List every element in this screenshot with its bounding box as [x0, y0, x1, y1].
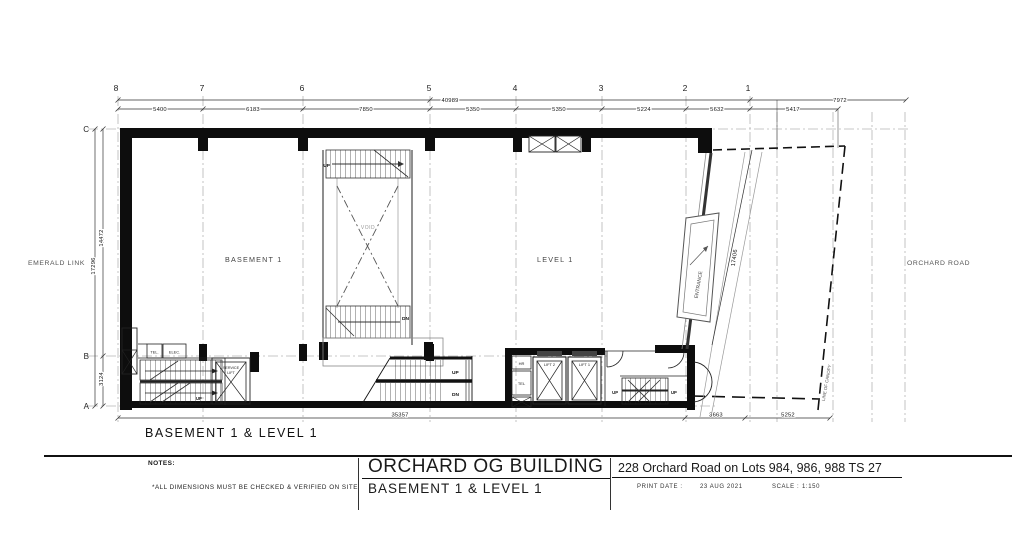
dim-3-2: 5224: [637, 107, 651, 113]
scissor-up-left-label: UP: [612, 390, 618, 395]
bottom-dimensions: 35357 3663 5252: [116, 413, 833, 421]
escalator-dn-label: DN: [452, 392, 459, 398]
dim-entrance: 17406: [731, 249, 739, 267]
dim-left-total: 17296: [91, 257, 97, 274]
lift2-label: LIFT 2: [544, 362, 555, 367]
scissor-up-right-label: UP: [671, 390, 677, 395]
grid-col-3: 3: [599, 83, 604, 93]
notes-text: *ALL DIMENSIONS MUST BE CHECKED & VERIFI…: [152, 484, 358, 491]
entrance-canopy: ENTRANCE: [677, 213, 719, 322]
dim-1-edge: 5417: [786, 107, 800, 113]
dim-canopy-top: 7972: [833, 98, 847, 104]
project-title-underline: [362, 478, 610, 479]
grid-col-6: 6: [300, 83, 305, 93]
grid-row-c: C: [83, 125, 89, 134]
emerald-link-label: EMERALD LINK: [28, 260, 85, 267]
dim-5-4: 5350: [466, 107, 480, 113]
void-label: VOID: [361, 225, 375, 231]
print-date-value: 23 AUG 2021: [700, 484, 743, 490]
tel-b1-label: TEL.: [150, 350, 158, 355]
top-vent-boxes: [529, 136, 581, 152]
title-block-divider-1: [358, 458, 359, 510]
dim-total-top: 40989: [441, 98, 458, 104]
grid-col-2: 2: [683, 83, 688, 93]
floor-plan-sheet: 8 7 6 5 4 3 2 1 5400 6183 7850 5350 5350…: [0, 0, 1024, 537]
left-dimensions: C B A 17296 14472 3124 EMERALD LINK: [28, 125, 106, 411]
grid-col-8: 8: [114, 83, 119, 93]
stair-up-label-central: UP: [323, 163, 330, 169]
grid-col-5: 5: [427, 83, 432, 93]
tel-l1-label: TEL: [518, 381, 526, 386]
elec-label: ELEC.: [169, 350, 180, 355]
orchard-road-label: ORCHARD ROAD: [907, 260, 970, 267]
print-date-label: PRINT DATE :: [637, 484, 683, 490]
grid-col-4: 4: [513, 83, 518, 93]
stair-dn-label-central: DN: [402, 316, 409, 322]
scale-value: 1:150: [802, 484, 820, 490]
grid-row-a: A: [84, 402, 90, 411]
title-block: NOTES: *ALL DIMENSIONS MUST BE CHECKED &…: [0, 450, 1024, 537]
dim-left-c-b: 14472: [99, 229, 105, 246]
level1-area-label: LEVEL 1: [537, 255, 574, 264]
dim-bottom-2: 5252: [781, 413, 795, 419]
grid-col-1: 1: [746, 83, 751, 93]
dim-7-6: 6183: [246, 107, 260, 113]
service-lift-label-1: SERVICE: [223, 366, 240, 370]
scale-label: SCALE :: [772, 484, 799, 490]
l1-lift-block: [512, 351, 712, 407]
escalators: [362, 356, 472, 406]
escalator-up-label: UP: [452, 370, 459, 376]
dim-8-7: 5400: [153, 107, 167, 113]
dim-6-5: 7850: [359, 107, 373, 113]
dim-4-3: 5350: [552, 107, 566, 113]
dim-bottom-total: 35357: [391, 413, 408, 419]
stair-up-label-b1: UP: [196, 396, 202, 401]
project-address-underline: [612, 477, 902, 478]
hr-label: HR: [519, 361, 525, 366]
central-stair-core: [323, 150, 443, 366]
floor-plan-drawing: 8 7 6 5 4 3 2 1 5400 6183 7850 5350 5350…: [0, 0, 1024, 452]
top-dimensions: 8 7 6 5 4 3 2 1 5400 6183 7850 5350 5350…: [114, 83, 909, 150]
project-title: ORCHARD OG BUILDING: [368, 456, 608, 478]
lift1-label: LIFT 1: [579, 362, 590, 367]
dim-2-1: 5632: [710, 107, 724, 113]
project-address: 228 Orchard Road on Lots 984, 986, 988 T…: [618, 461, 882, 475]
grid-col-7: 7: [200, 83, 205, 93]
drawing-name: BASEMENT 1 & LEVEL 1: [368, 481, 543, 496]
grid-row-b: B: [84, 352, 89, 361]
notes-label: NOTES:: [148, 460, 175, 467]
plan-caption: BASEMENT 1 & LEVEL 1: [145, 426, 318, 440]
title-block-divider-2: [610, 458, 611, 510]
dim-left-b-a: 3124: [99, 372, 105, 386]
basement1-area-label: BASEMENT 1: [225, 255, 282, 264]
service-lift-label-2: LIFT: [227, 371, 235, 375]
